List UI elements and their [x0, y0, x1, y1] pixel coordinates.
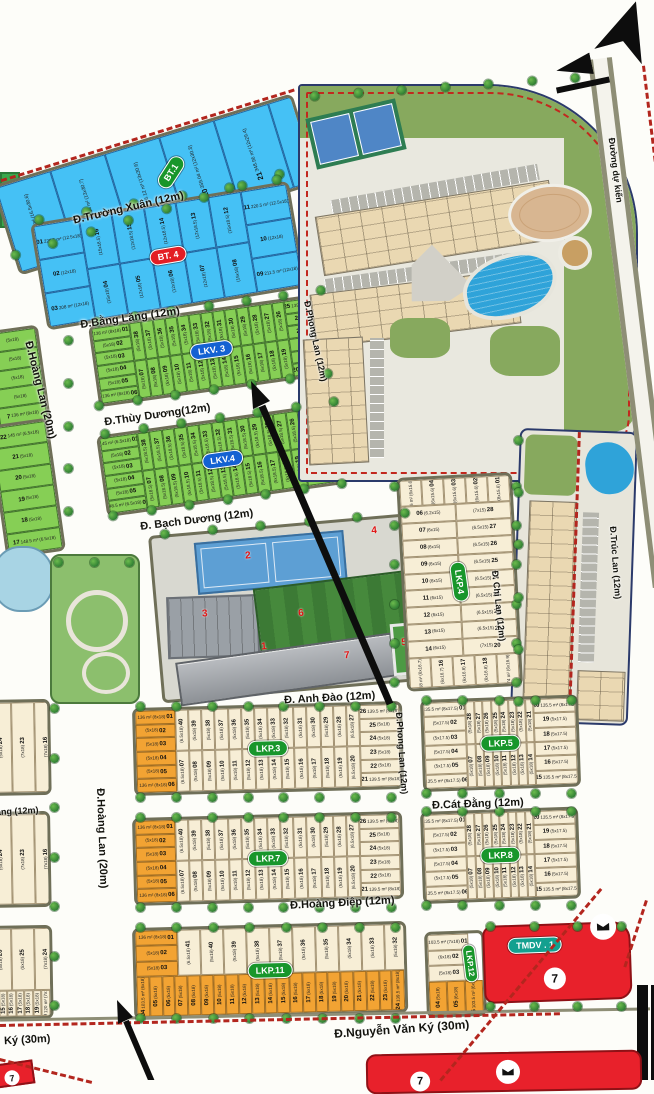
block-west-b: 145 m²(6.5x18)22(5x18)21(5x18)20(5x18)19… [0, 418, 66, 559]
block-lkp12: 103.5 m²(7x18)01(6x18)02(5x18)03 (5x18)0… [424, 930, 487, 1018]
lot: (5x18)22 [360, 869, 400, 884]
lot: (5x17.5)03 [424, 730, 466, 746]
lot: (5x18)25 [12, 928, 36, 990]
block-lkp5: 135.5 m²(8x17.5)01(5x17.5)02(5x17.5)03(5… [420, 694, 581, 791]
lawn [390, 318, 450, 358]
lot: 139.5 m²(8x18)26 [359, 814, 399, 829]
lot: (5x17.5)18 [534, 726, 576, 742]
lot: (5x18)03 [136, 737, 176, 752]
lot: (5x18)10 [216, 859, 230, 900]
lot: (5x18)38 [201, 819, 215, 860]
lot: (5x18)21 [353, 971, 367, 1011]
lot: (5x18)06 [162, 976, 176, 1016]
lot: (5x18)19 [328, 972, 342, 1012]
block-lkp8: 135.5 m²(8x17.5)01(5x17.5)02(5x17.5)03(5… [420, 806, 581, 903]
apartment-complex [298, 84, 638, 482]
park-ring-path [66, 590, 128, 652]
school-number-7: 7 [344, 650, 351, 661]
lot: (6.5x18)07 [176, 861, 190, 902]
block-west-e: (5x18)26(5x18)25(7x18)24 136 m²(8x18)23(… [0, 925, 54, 1020]
lot: (6.5x18)40 [175, 710, 189, 751]
park [50, 554, 140, 704]
tree-icon [244, 793, 253, 802]
badge-7: 7 [410, 1071, 430, 1091]
lot: (5x18)18 [321, 857, 335, 898]
lot: (5x17.5)18 [534, 838, 576, 854]
tree-icon [315, 793, 324, 802]
school-number-2: 2 [245, 550, 252, 561]
school-number-3: 3 [202, 608, 209, 619]
lot: (5x17.5)19 [534, 712, 576, 728]
roundabout [558, 236, 592, 270]
lot: (5x18)11 [226, 974, 240, 1014]
lot: (5x18)04 [429, 981, 448, 1015]
lot: 103.5 m²(6x18)04 [136, 977, 150, 1017]
block-label-lkp8: LKP.8 [480, 847, 521, 864]
tree-icon [567, 901, 576, 910]
block-lkp11: 136 m²(8x18)01(5x18)02(5x18)03 (6.5x18)4… [132, 921, 408, 1020]
lot: (5x18)24 [360, 841, 400, 856]
lot: (5x18)17 [302, 972, 316, 1012]
lot: (6.5x18)40 [175, 820, 189, 861]
tree-icon [64, 336, 73, 345]
tree-icon [64, 464, 73, 473]
lot: (5x18)10 [213, 975, 227, 1015]
tree-row [64, 336, 73, 516]
north-arrow-icon [594, 0, 654, 64]
tree-icon [208, 793, 217, 802]
school-building-3 [166, 594, 260, 659]
lot: 135.5 m²(8x17.5)01 [423, 701, 465, 717]
lot: (6x16.8)17 [452, 655, 476, 686]
tree-icon [531, 789, 540, 798]
lot: (5x18)14 [264, 973, 278, 1013]
tree-icon [244, 903, 253, 912]
lot: 135.5 m²(8x17.5)06 [426, 773, 468, 789]
lot: (5x17.5)05 [425, 871, 467, 887]
badge-7-text: 7 [417, 1075, 423, 1087]
lot: (5x18)28 [333, 815, 347, 856]
lot: (5x18)20 [340, 971, 354, 1011]
badge-7: 7 [4, 1069, 21, 1086]
block-label-lkp7: LKP.7 [248, 850, 289, 867]
master-plan-map: { "streets": { "truong_xuan": "Đ.Trường … [0, 0, 654, 1080]
lot: (5x18)02 [135, 834, 175, 849]
lot: (5x18)34 [338, 925, 362, 972]
lot: (5x18)12 [238, 974, 252, 1014]
badge-7-text: 7 [551, 971, 558, 985]
lot: (5x18)31 [293, 816, 307, 857]
lot: (5x18)04 [136, 861, 176, 876]
lot: (5x18)36 [292, 926, 316, 973]
lot: (5x18)15 [277, 973, 291, 1013]
lot: (6.5x18)41 [177, 929, 201, 976]
tennis-court-surface [353, 103, 402, 155]
lot: (7x18)16 [34, 702, 52, 792]
lot: (5x18)32 [384, 924, 408, 971]
tree-icon [387, 793, 396, 802]
lot: (5x18)35 [315, 926, 339, 973]
block-lkp3: 136 m²(8x18)01(5x18)02(5x18)03(5x18)04(5… [132, 701, 404, 796]
tree-icon [351, 793, 360, 802]
lot: (7x18)16 [34, 814, 52, 904]
lot: (5x18)09 [200, 975, 214, 1015]
lot: (6x15.6)02 [465, 476, 488, 503]
lot: (5x18)13 [251, 974, 265, 1014]
lot: (5x18)39 [188, 819, 202, 860]
tree-icon [279, 903, 288, 912]
lot: 97.18 m²(6x16.7)15 [408, 657, 432, 688]
lot: (7x18)24 [34, 928, 54, 990]
tree-icon [527, 76, 537, 86]
lot: (5x18)29 [320, 816, 334, 857]
parking-row [370, 338, 384, 458]
lot: (5x18)30 [306, 816, 320, 857]
lot: (5x18)02 [135, 945, 177, 961]
lot: (5x18)30 [306, 706, 320, 747]
lot: (5x17.5)04 [425, 856, 467, 872]
lot: (5x17.5)17 [535, 741, 577, 757]
lot: (5x18)40 [200, 929, 224, 976]
basketball-court [272, 536, 341, 582]
m-logo-icon [500, 1066, 515, 1078]
lot: (5x18)23 [379, 970, 393, 1010]
arrow-line [126, 1021, 152, 1080]
lot: (6.5x18)20 [347, 746, 361, 787]
lot: (5x18)24 [360, 731, 400, 746]
lot: (5x18)16 [289, 973, 303, 1013]
lot: 139.5 m²(8x18)26 [359, 704, 399, 719]
lot: (5x18)29 [320, 706, 334, 747]
lot: (5x18)05 [149, 976, 163, 1016]
lot: 92.74 m²(6x16.9)19 [496, 653, 520, 684]
lot: (7x18)23 [12, 814, 36, 904]
lot: (6x18)05 [447, 980, 466, 1014]
block-lkp7: 136 m²(8x18)01(5x18)02(5x18)03(5x18)04(5… [132, 811, 404, 906]
lot: 139.5 m²(8x18)24 [392, 970, 406, 1010]
block-lkp4: 95.16 m²(6x15.6)05(6x15.6)04(6x15.6)03(6… [396, 472, 523, 692]
lot: (5x18)16 [294, 747, 308, 788]
block-label-lkp3: LKP.3 [248, 740, 289, 757]
block-tmdv1: TMDV . 1 7 [482, 921, 633, 1004]
lot: (5x18)39 [223, 928, 247, 975]
badge-7: 7 [543, 967, 566, 990]
block-label-lkp11: LKP.11 [248, 962, 293, 979]
lot: (5x18)10 [216, 749, 230, 790]
lot: (5x18)07 [175, 976, 189, 1016]
lot: 120 m²(7x18)20 [42, 990, 51, 1016]
lot: (5x18)37 [214, 818, 228, 859]
lot: (6x16.7)16 [430, 656, 454, 687]
lot: (5x18)37 [214, 708, 228, 749]
lot: 136 m²(8x18)06 [137, 778, 177, 793]
lot: (6.5x18)07 [176, 751, 190, 792]
street-label-du-kien: Đường dự kiến [607, 137, 625, 203]
street-label-hoang-lan-south: Đ.Hoàng Lan (20m) [94, 788, 109, 889]
lot: (5x17.5)02 [424, 828, 466, 844]
tree-icon [495, 901, 504, 910]
lot: (5x18)25 [359, 828, 399, 843]
lot: (5x18)31 [407, 923, 408, 970]
lot: (5x18)38 [201, 709, 215, 750]
lot: (5x17.5)02 [424, 716, 466, 732]
tree-icon [64, 422, 73, 431]
school-number-4: 4 [371, 525, 378, 536]
lawn [490, 326, 560, 376]
tree-icon [64, 507, 73, 516]
school-number-1: 1 [261, 641, 268, 652]
lot: (5x17.5)04 [425, 744, 467, 760]
tree-icon [208, 903, 217, 912]
lot: (5x18)18 [321, 747, 335, 788]
lot: 136 m²(8x18)01 [135, 930, 177, 946]
school-number-6: 6 [298, 608, 305, 619]
lot: 135.5 m²(8x17.5)20 [533, 810, 575, 826]
lot: (6.5x18)27 [346, 815, 360, 856]
street-label-ky-fragment: Ký (30m) [4, 1033, 51, 1047]
lot: (5x18)04 [136, 751, 176, 766]
lot: (5x18)23 [360, 745, 400, 760]
lot: (6x15.6)04 [421, 479, 444, 506]
lot: (5x18)03 [136, 960, 178, 976]
lot: (5x18)16 [294, 857, 308, 898]
lot: (5x18)09 [202, 750, 216, 791]
lot: (5x17.5)16 [535, 867, 577, 883]
school-block: 1 2 3 4 5 6 7 [148, 512, 436, 703]
lot: (5x18)05 [137, 875, 177, 890]
lot: (5x18)08 [187, 975, 201, 1015]
lawn [524, 434, 578, 496]
lot: 211.5 m²(12x18)09 [252, 251, 303, 292]
lot: (5x18)17 [307, 747, 321, 788]
lot: (5x18)03 [136, 847, 176, 862]
lot: (5x18)05 [137, 765, 177, 780]
lot: (8x15.6)01 [487, 475, 510, 502]
lot: (5x18)39 [188, 709, 202, 750]
parking-row [578, 512, 599, 662]
lot: 135.5 m²(8x17.5)15 [536, 881, 578, 897]
apartment-building [576, 670, 626, 722]
lot: (5x17.5)03 [424, 842, 466, 858]
lot: (5x18)02 [135, 724, 175, 739]
lot: 95.16 m²(6x15.6)05 [399, 480, 422, 507]
lot: (5x17.5)05 [425, 759, 467, 775]
lot: (5x18)28 [333, 705, 347, 746]
basketball-court [200, 543, 269, 589]
lot: (5x17.5)16 [535, 755, 577, 771]
pond [0, 546, 54, 612]
lot: (5x18)22 [366, 971, 380, 1011]
lot: (6.5x18)20 [347, 856, 361, 897]
lot: (5x18)08 [189, 860, 203, 901]
lot: 103.5 m²(6x18)06 [465, 980, 484, 1014]
block-label-lkp5: LKP.5 [480, 735, 521, 752]
tree-icon [50, 902, 59, 911]
lot: (6.5x18)27 [346, 705, 360, 746]
road-arrow-icon [554, 52, 594, 81]
lot: (5x18)23 [360, 855, 400, 870]
lot: 136 m²(8x18)01 [135, 710, 175, 725]
lot: (5x18)19 [334, 856, 348, 897]
lot: 136 m²(8x18)06 [137, 888, 177, 903]
lot: 136 m²(8x18)01 [135, 820, 175, 835]
lot: (5x18)36 [228, 818, 242, 859]
badge-7-text: 7 [9, 1073, 15, 1084]
park-path [82, 652, 130, 694]
block-west-d: (5x18)24(7x18)23 (7x18)16(5x18)15(5x18)1… [0, 811, 52, 908]
lot: (6x15.6)03 [443, 477, 466, 504]
tennis-court-surface [310, 113, 359, 165]
lot: (5x18)19 [334, 746, 348, 787]
m-logo-icon [595, 920, 611, 934]
tree-icon [50, 704, 59, 713]
lot: (5x17.5)17 [535, 853, 577, 869]
lot: (5x18)17 [307, 857, 321, 898]
lot: (7x18)23 [12, 702, 36, 792]
block-west-c: (5x18)24(7x18)23 (7x18)16(5x18)15(5x18)1… [0, 699, 52, 796]
lot: (5x17.5)19 [534, 824, 576, 840]
tree-icon [50, 853, 59, 862]
lot: (5x18)36 [228, 708, 242, 749]
lot: 135.5 m²(8x17.5)01 [423, 813, 465, 829]
lot: (5x18)31 [293, 706, 307, 747]
tree-icon [567, 789, 576, 798]
swimming-pool [580, 436, 638, 499]
lot: (5x18)18 [315, 972, 329, 1012]
lot: 135.5 m²(8x17.5)20 [533, 698, 575, 714]
lot: 135.5 m²(8x17.5)15 [536, 769, 578, 785]
lot: (5x18)11 [229, 749, 243, 790]
lot: 139.5 m²(8x18)21 [361, 772, 401, 787]
track-inner [517, 191, 583, 235]
tree-icon [64, 379, 73, 388]
lot: (5x18)09 [202, 860, 216, 901]
lot: (5x18)33 [361, 924, 385, 971]
tree-icon [570, 73, 580, 83]
tree-icon [279, 793, 288, 802]
m-logo-circle [590, 913, 617, 940]
lot: (5x18)11 [229, 859, 243, 900]
block-red-south: 7 [366, 1050, 643, 1094]
street-label-nguyen-van-ky: Đ.Nguyễn Văn Ký (30m) [334, 1017, 470, 1040]
lot: 135.5 m²(8x17.5)06 [426, 885, 468, 901]
lot: (5x18)08 [189, 750, 203, 791]
m-logo-circle [496, 1060, 520, 1084]
lot: (5x18)22 [360, 759, 400, 774]
tree-icon [531, 901, 540, 910]
lot: (6x16.8)18 [474, 654, 498, 685]
tree-icon [50, 754, 59, 763]
tree-icon [50, 803, 59, 812]
